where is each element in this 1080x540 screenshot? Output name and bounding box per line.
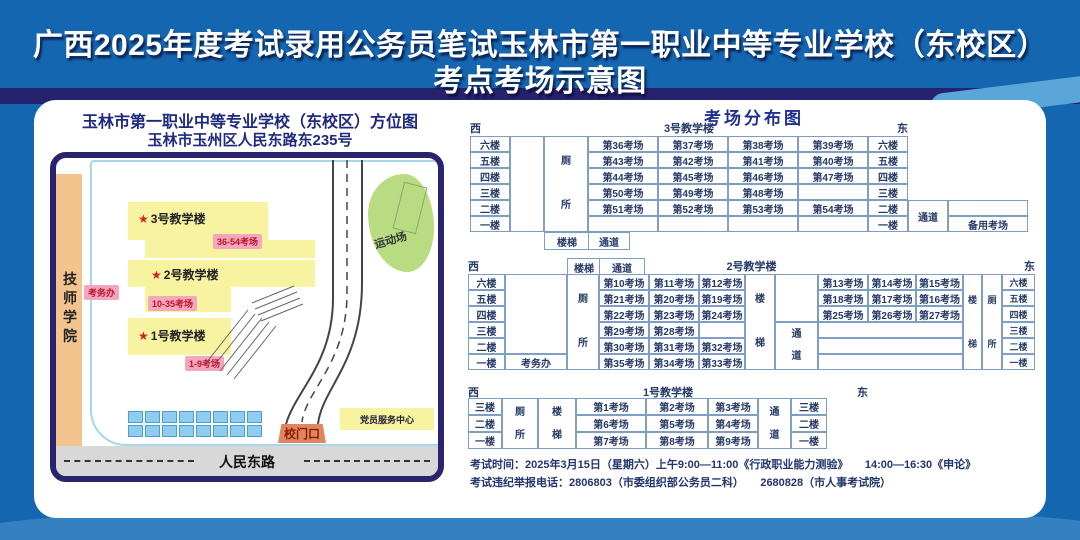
west-label: 西 — [470, 120, 481, 136]
empty-cell — [505, 274, 567, 354]
floor-label: 二楼 — [470, 200, 510, 216]
corridor-cell: 通道 — [908, 200, 948, 232]
stairs-cell: 楼 梯 — [745, 274, 775, 370]
room-cell: 第44考场 — [588, 168, 658, 184]
room-cell: 第52考场 — [658, 200, 728, 216]
room-cell: 第13考场 — [818, 274, 868, 290]
room-cell: 第18考场 — [818, 290, 868, 306]
room-cell: 第45考场 — [658, 168, 728, 184]
room-cell: 第12考场 — [699, 274, 745, 290]
reserve-room-cell: 备用考场 — [948, 216, 1028, 232]
room-cell: 第48考场 — [728, 184, 798, 200]
room-cell: 第1考场 — [576, 398, 646, 415]
empty-cell — [948, 200, 1028, 216]
room-cell: 第16考场 — [916, 290, 963, 306]
room-cell: 第32考场 — [699, 338, 745, 354]
stairs-cell: 楼 梯 — [538, 398, 576, 449]
building1-table: 三楼 二楼 一楼 厕 所 楼 梯 第1考场 第2考场 第3考场 第6考场 第5考… — [468, 398, 827, 449]
exam-time-note: 考试时间：2025年3月15日（星期六）上午9:00—11:00《行政职业能力测… — [470, 456, 1050, 472]
empty-cell — [775, 274, 818, 322]
empty-cell — [818, 322, 963, 338]
corridor-cell: 通 道 — [758, 398, 791, 449]
room-cell: 第21考场 — [599, 290, 649, 306]
room-cell: 第24考场 — [699, 306, 745, 322]
room-cell: 第53考场 — [728, 200, 798, 216]
room-cell: 第8考场 — [646, 432, 708, 449]
page-title-line2: 考点考场示意图 — [0, 56, 1080, 100]
room-cell: 第23考场 — [649, 306, 699, 322]
room-cell: 第42考场 — [658, 152, 728, 168]
campus-map: 技 师 学 院 ★3号教学楼 ★2号教学楼 ★1号教学楼 36-54考场 考务办… — [50, 152, 444, 482]
room-cell: 第39考场 — [798, 136, 868, 152]
building3-header: 西 3号教学楼 东 — [470, 120, 908, 136]
empty-cell — [699, 322, 745, 338]
room-cell: 第14考场 — [868, 274, 916, 290]
floor-label: 一楼 — [868, 216, 908, 232]
room-cell: 第27考场 — [916, 306, 963, 322]
east-label: 东 — [1024, 258, 1035, 274]
floor-label: 一楼 — [1002, 354, 1035, 370]
floor-label: 三楼 — [1002, 322, 1035, 338]
map-address: 玉林市玉州区人民东路东235号 — [50, 129, 450, 150]
room-cell: 第25考场 — [818, 306, 868, 322]
room-cell: 第37考场 — [658, 136, 728, 152]
corridor-cell: 通道 — [588, 232, 630, 250]
floor-label: 二楼 — [791, 415, 827, 432]
floor-label: 六楼 — [470, 136, 510, 152]
floor-label: 五楼 — [470, 152, 510, 168]
room-cell: 第2考场 — [646, 398, 708, 415]
room-cell: 第54考场 — [798, 200, 868, 216]
room-cell: 第19考场 — [699, 290, 745, 306]
empty-cell — [588, 216, 658, 232]
empty-cell — [658, 216, 728, 232]
empty-cell — [818, 338, 963, 354]
corridor-cell: 通 道 — [775, 322, 818, 370]
floor-label: 二楼 — [1002, 338, 1035, 354]
room-cell: 第46考场 — [728, 168, 798, 184]
floor-label: 三楼 — [470, 184, 510, 200]
floor-label: 一楼 — [470, 216, 510, 232]
floor-label: 二楼 — [868, 200, 908, 216]
room-cell: 第10考场 — [599, 274, 649, 290]
room-cell: 第50考场 — [588, 184, 658, 200]
floor-label: 五楼 — [868, 152, 908, 168]
room-cell: 第20考场 — [649, 290, 699, 306]
room-cell: 第28考场 — [649, 322, 699, 338]
floor-label: 二楼 — [468, 338, 505, 354]
school-gate: 校门口 — [278, 424, 326, 443]
empty-cell — [798, 216, 868, 232]
room-cell: 第31考场 — [649, 338, 699, 354]
floor-label: 三楼 — [468, 398, 502, 415]
room-cell: 第36考场 — [588, 136, 658, 152]
floor-label: 六楼 — [868, 136, 908, 152]
room-cell: 第17考场 — [868, 290, 916, 306]
floor-label: 一楼 — [468, 432, 502, 449]
parking-grid — [128, 411, 262, 437]
stairs-cell: 楼 梯 — [963, 274, 982, 370]
toilet-cell: 厕 所 — [502, 398, 538, 449]
room-cell: 第43考场 — [588, 152, 658, 168]
room-cell: 第7考场 — [576, 432, 646, 449]
room-cell: 第4考场 — [708, 415, 758, 432]
room-cell: 第6考场 — [576, 415, 646, 432]
empty-cell — [510, 136, 544, 232]
floor-label: 五楼 — [468, 290, 505, 306]
floor-label: 四楼 — [470, 168, 510, 184]
room-cell: 第33考场 — [699, 354, 745, 370]
floor-label: 六楼 — [468, 274, 505, 290]
room-cell: 第49考场 — [658, 184, 728, 200]
room-cell: 第30考场 — [599, 338, 649, 354]
empty-cell — [728, 216, 798, 232]
exam-office-cell: 考务办 — [505, 354, 567, 370]
floor-label: 四楼 — [868, 168, 908, 184]
room-cell: 第5考场 — [646, 415, 708, 432]
room-cell: 第29考场 — [599, 322, 649, 338]
empty-cell — [798, 184, 868, 200]
room-cell: 第9考场 — [708, 432, 758, 449]
party-service-center: 党员服务中心 — [340, 408, 434, 430]
room-cell: 第38考场 — [728, 136, 798, 152]
toilet-cell: 厕 所 — [544, 136, 588, 232]
floor-label: 一楼 — [468, 354, 505, 370]
room-cell: 第40考场 — [798, 152, 868, 168]
toilet-cell: 厕 所 — [982, 274, 1002, 370]
content-panel: 玉林市第一职业中等专业学校（东校区）方位图 玉林市玉州区人民东路东235号 技 … — [34, 100, 1046, 518]
room-cell: 第15考场 — [916, 274, 963, 290]
room-cell: 第26考场 — [868, 306, 916, 322]
floor-label: 六楼 — [1002, 274, 1035, 290]
building2-header: 西 2号教学楼 东 — [468, 258, 1035, 274]
floor-label: 一楼 — [791, 432, 827, 449]
building3-name: 3号教学楼 — [664, 120, 714, 136]
room-cell: 第22考场 — [599, 306, 649, 322]
west-label: 西 — [468, 258, 479, 274]
toilet-cell: 厕 所 — [567, 274, 599, 370]
room-cell: 第3考场 — [708, 398, 758, 415]
floor-label: 三楼 — [468, 322, 505, 338]
room-cell: 第34考场 — [649, 354, 699, 370]
room-cell: 第41考场 — [728, 152, 798, 168]
floor-label: 四楼 — [1002, 306, 1035, 322]
poster: 广西2025年度考试录用公务员笔试玉林市第一职业中等专业学校（东校区） 考点考场… — [0, 0, 1080, 540]
empty-cell — [818, 354, 963, 370]
east-label: 东 — [857, 384, 868, 400]
stairs-cell: 楼梯 — [544, 232, 590, 250]
floor-label: 五楼 — [1002, 290, 1035, 306]
report-phone-note: 考试违纪举报电话：2806803（市委组织部公务员二科） 2680828（市人事… — [470, 474, 1050, 490]
building2-table: 六楼 五楼 四楼 三楼 二楼 一楼 考务办 厕 所 第10考场 第11考场 第1… — [468, 274, 1035, 370]
floor-label: 四楼 — [468, 306, 505, 322]
room-cell: 第35考场 — [599, 354, 649, 370]
building2-name: 2号教学楼 — [726, 258, 776, 274]
room-cell: 第47考场 — [798, 168, 868, 184]
building3-table: 六楼 五楼 四楼 三楼 二楼 一楼 厕 所 第36考场 第37考场 第38考场 … — [470, 136, 1028, 232]
floor-label: 三楼 — [791, 398, 827, 415]
floor-label: 二楼 — [468, 415, 502, 432]
room-cell: 第11考场 — [649, 274, 699, 290]
renmin-east-road: 人民东路 — [56, 446, 438, 476]
east-label: 东 — [897, 120, 908, 136]
floor-label: 三楼 — [868, 184, 908, 200]
road-label: 人民东路 — [56, 452, 438, 472]
room-cell: 第51考场 — [588, 200, 658, 216]
